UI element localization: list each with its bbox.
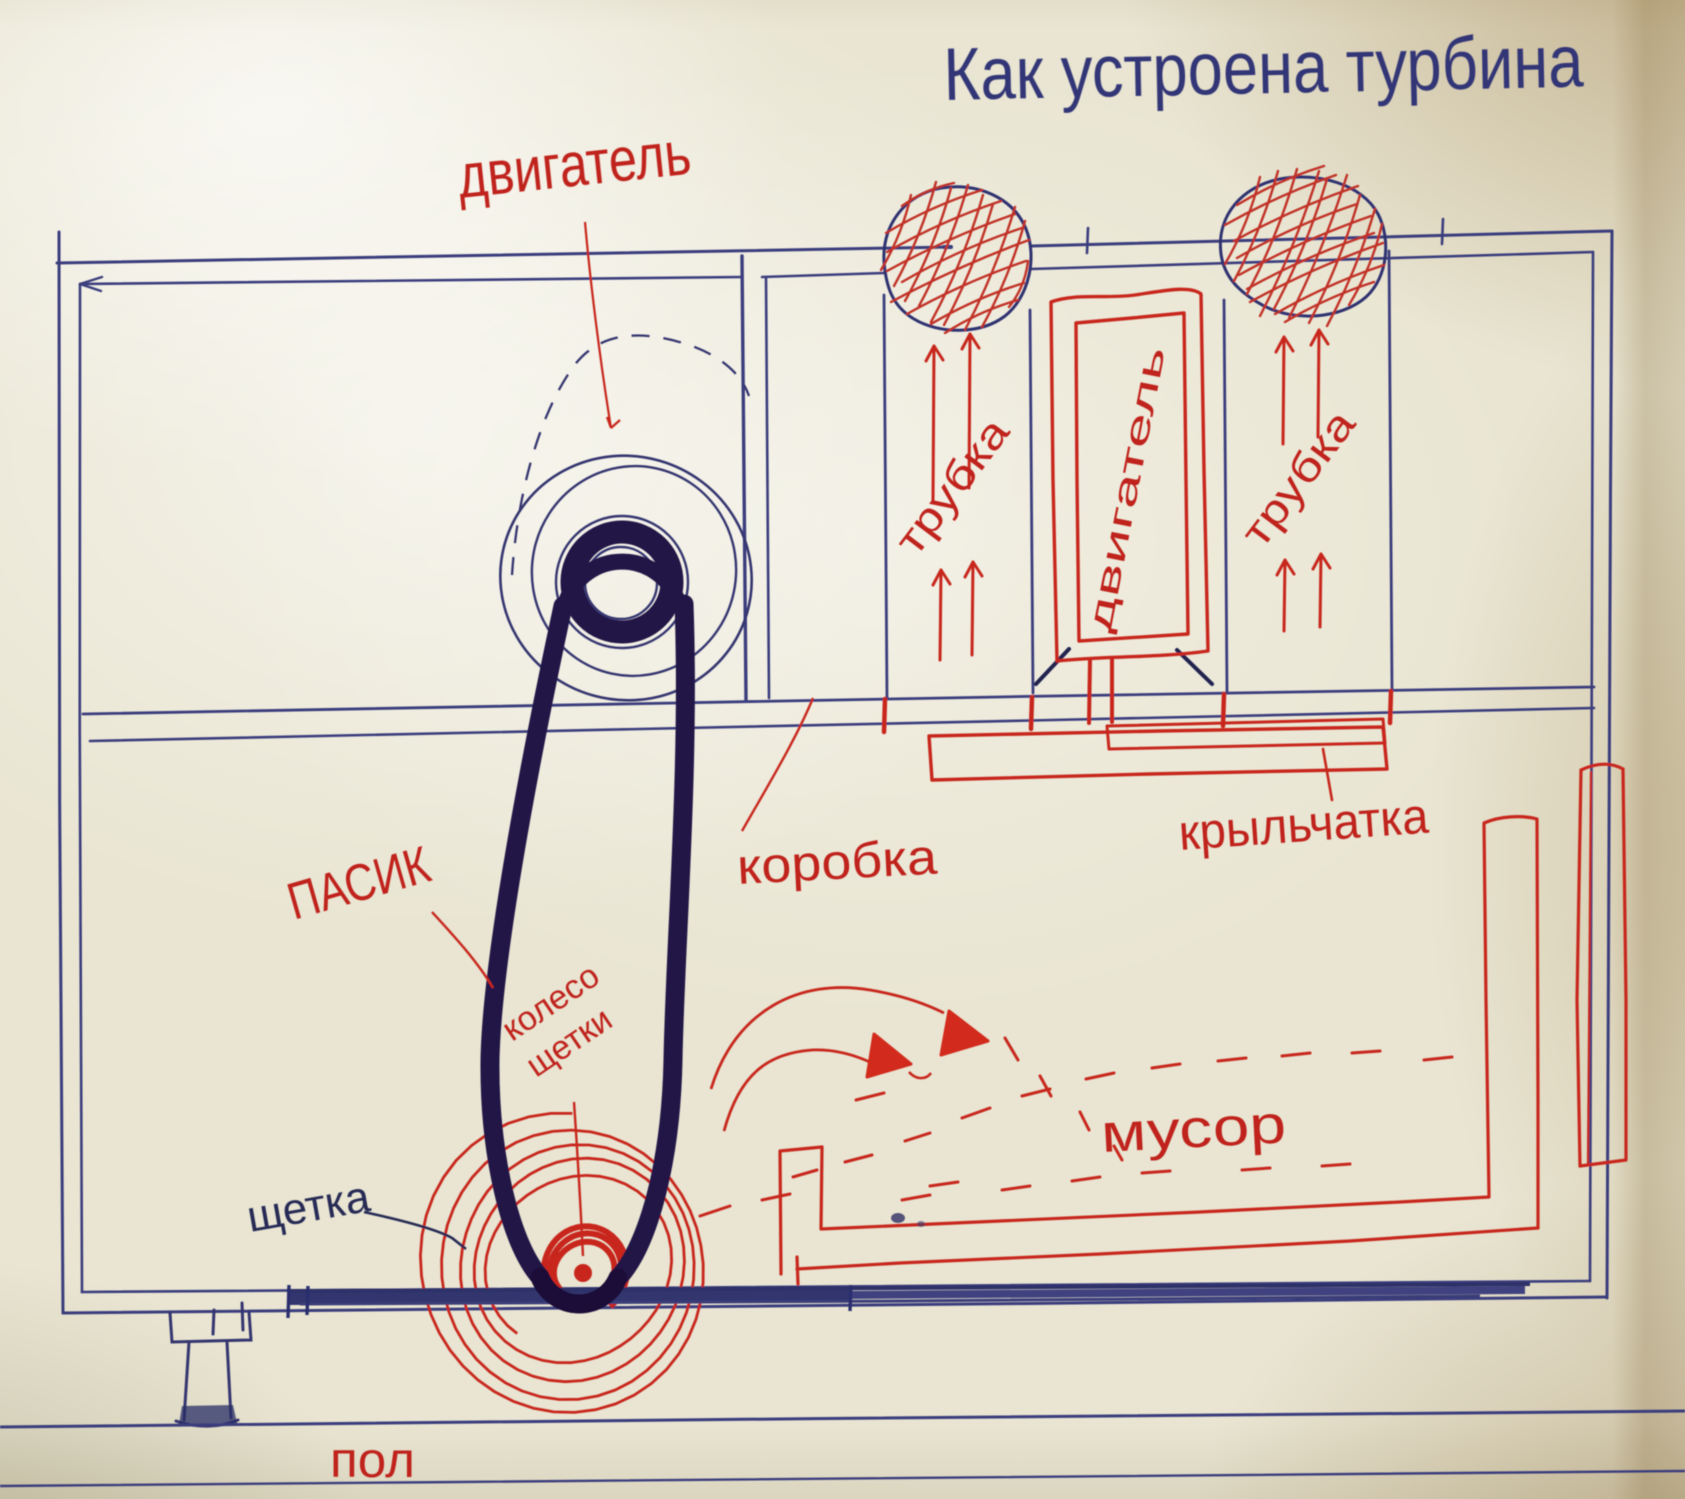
svg-text:трубка: трубка [1232, 400, 1365, 555]
svg-text:двигатель: двигатель [1081, 344, 1174, 636]
svg-text:ПАСИК: ПАСИК [281, 836, 436, 932]
svg-text:Как устроена турбина: Как устроена турбина [943, 20, 1585, 116]
svg-text:щетка: щетка [243, 1172, 374, 1242]
svg-text:коробка: коробка [736, 829, 939, 895]
svg-text:крыльчатка: крыльчатка [1177, 788, 1430, 861]
svg-text:мусор: мусор [1099, 1094, 1287, 1164]
svg-text:трубка: трубка [886, 408, 1019, 563]
svg-text:пол: пол [330, 1432, 415, 1488]
svg-text:двигатель: двигатель [454, 119, 694, 212]
